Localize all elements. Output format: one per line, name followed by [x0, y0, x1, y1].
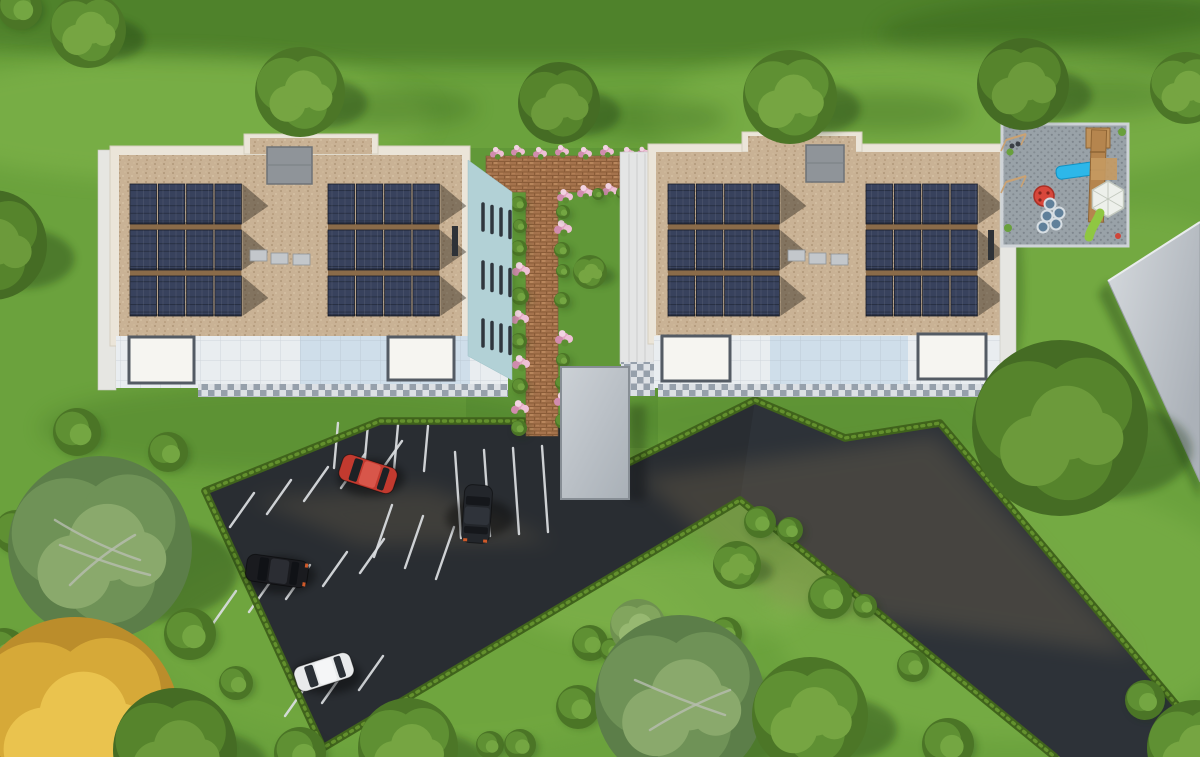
solar-panel [923, 184, 950, 224]
solar-panel [158, 230, 185, 270]
solar-panel [215, 230, 242, 270]
solar-array-right-a [668, 184, 806, 316]
play-plant [1004, 224, 1012, 232]
tree-foliage [740, 561, 754, 575]
flower [515, 310, 522, 317]
solar-panel [130, 276, 157, 316]
terrace-skylight [388, 337, 454, 380]
play-platform [1091, 158, 1117, 180]
bush-light [571, 699, 591, 719]
solar-panel [385, 276, 412, 316]
bush-light [908, 660, 922, 674]
solar-panel [215, 276, 242, 316]
tree-foliage [1029, 76, 1057, 104]
flower [536, 147, 541, 152]
flower [538, 154, 544, 160]
flower [603, 145, 608, 150]
tree-foliage [93, 23, 116, 46]
terrace-skylight [129, 337, 194, 383]
panel-row-frame [328, 224, 439, 230]
bush-light [518, 383, 525, 390]
bush-light [517, 338, 524, 345]
panel-row-shade [668, 222, 779, 224]
solar-panel [725, 276, 752, 316]
aerial-site-render [0, 0, 1200, 757]
panel-row-shade [668, 314, 779, 316]
solar-panel [894, 276, 921, 316]
bush-light [561, 358, 567, 364]
flower [581, 147, 586, 152]
tree-foliage [0, 235, 32, 268]
flower [517, 319, 524, 326]
panel-row-shade [328, 268, 439, 270]
bush-light [786, 525, 798, 537]
flower [605, 183, 611, 189]
solar-panel [951, 276, 978, 316]
roof-vent [452, 226, 458, 256]
solar-panel [668, 276, 695, 316]
tree-foliage [690, 685, 741, 736]
car-roof [268, 558, 290, 584]
flower [495, 154, 501, 160]
bush-light [596, 192, 601, 197]
solar-panel [725, 184, 752, 224]
flower [516, 152, 522, 158]
panel-row-frame [130, 224, 241, 230]
flower [583, 154, 589, 160]
tree-foliage [305, 84, 332, 111]
flower [563, 197, 569, 203]
car-taillight [463, 538, 467, 541]
car-body-group [461, 484, 493, 544]
solar-panel [894, 184, 921, 224]
solar-panel [187, 276, 214, 316]
play-seat [1038, 222, 1049, 233]
flower [514, 145, 519, 150]
solar-panel [328, 276, 355, 316]
solar-panel [356, 184, 383, 224]
car-taillight [483, 539, 487, 542]
roof-vent [988, 230, 994, 260]
tree-foliage [592, 269, 602, 279]
circle [1038, 191, 1041, 194]
flower [517, 409, 524, 416]
flower [558, 220, 565, 227]
solar-array-left-b [328, 184, 466, 316]
solar-panel [328, 184, 355, 224]
car-taillight [305, 563, 309, 567]
solar-panel [413, 184, 440, 224]
flower [560, 229, 567, 236]
terrace-skylight [662, 336, 730, 381]
scene-layers [0, 0, 1200, 757]
bush-light [561, 269, 567, 275]
tree-foliage [796, 89, 824, 117]
solar-panel [130, 184, 157, 224]
solar-panel [356, 276, 383, 316]
tree-foliage [564, 96, 589, 121]
solar-panel [385, 230, 412, 270]
panel-row-shade [866, 222, 977, 224]
panel-row-shade [130, 222, 241, 224]
panel-row-frame [866, 224, 977, 230]
solar-panel [668, 184, 695, 224]
play-plant [1007, 149, 1014, 156]
solar-panel [894, 230, 921, 270]
bush-light [162, 445, 180, 463]
solar-array-left-a [130, 184, 268, 316]
bush-light [13, 0, 33, 20]
bush-light [182, 625, 205, 648]
rooftop-hvac [831, 254, 848, 265]
solar-panel [923, 230, 950, 270]
terrace-checker-edge [198, 384, 508, 397]
solar-panel [866, 230, 893, 270]
flower [560, 152, 566, 158]
swing-seat [1016, 142, 1021, 147]
bush-light [515, 739, 529, 753]
panel-row-frame [328, 270, 439, 276]
bldg-left-teal-facade [468, 160, 512, 380]
rooftop-hvac [293, 254, 310, 265]
solar-panel [215, 184, 242, 224]
panel-row-shade [328, 222, 439, 224]
circle [1046, 191, 1049, 194]
terrace-skylight [918, 334, 986, 379]
circle [1038, 198, 1041, 201]
flower [605, 152, 611, 158]
flower [518, 364, 525, 371]
bush-light [1139, 693, 1157, 711]
bush-light [70, 424, 92, 446]
solar-panel [753, 276, 780, 316]
solar-panel [866, 184, 893, 224]
flower [516, 262, 523, 269]
canopy-shadow [628, 405, 646, 500]
bush-light [560, 247, 567, 254]
flower [558, 145, 563, 150]
rooftop-hvac [250, 250, 267, 261]
solar-panel [923, 276, 950, 316]
bush-light [517, 245, 524, 252]
bush-light [517, 201, 524, 208]
solar-panel [385, 184, 412, 224]
car-windshield [466, 496, 491, 506]
flower [640, 147, 645, 152]
solar-panel [696, 184, 723, 224]
solar-panel [130, 230, 157, 270]
panel-row-shade [130, 314, 241, 316]
rooftop-hvac [271, 253, 288, 264]
panel-row-frame [668, 270, 779, 276]
tree-foliage [1071, 412, 1124, 465]
solar-panel [951, 184, 978, 224]
flower [608, 191, 614, 197]
flower [493, 147, 498, 152]
solar-panel [413, 276, 440, 316]
car-taillight [302, 582, 306, 586]
solar-panel [158, 276, 185, 316]
solar-panel [951, 230, 978, 270]
flower [559, 330, 566, 337]
flower [515, 400, 522, 407]
panel-row-frame [866, 270, 977, 276]
solar-panel [753, 230, 780, 270]
solar-panel [668, 230, 695, 270]
panel-row-shade [866, 314, 977, 316]
flower [561, 339, 568, 346]
rooftop-hvac [809, 253, 826, 264]
panel-row-shade [130, 268, 241, 270]
solar-panel [725, 230, 752, 270]
bush-light [861, 602, 872, 613]
panel-row-shade [866, 268, 977, 270]
solar-array-right-b [866, 184, 1004, 316]
solar-panel [696, 230, 723, 270]
solar-panel [187, 230, 214, 270]
flower [580, 185, 586, 191]
panel-row-shade [668, 268, 779, 270]
flower [560, 189, 566, 195]
solar-panel [356, 230, 383, 270]
play-seat [1045, 199, 1056, 210]
solar-panel [413, 230, 440, 270]
solar-panel [696, 276, 723, 316]
bush-light [560, 297, 567, 304]
panel-row-shade [328, 314, 439, 316]
play-plant [1118, 128, 1126, 136]
solar-panel [328, 230, 355, 270]
play-seat [1054, 208, 1065, 219]
panel-row-frame [668, 224, 779, 230]
play-seat [1051, 219, 1062, 230]
car-roof [464, 506, 490, 525]
flower [624, 147, 629, 152]
entrance-canopy [561, 367, 629, 499]
tree-foliage [817, 705, 852, 740]
bush-light [231, 677, 246, 692]
garden-path-vertical [526, 190, 558, 436]
bush-light [486, 740, 499, 753]
flower [518, 271, 525, 278]
bush-light [518, 224, 524, 230]
solar-panel [753, 184, 780, 224]
solar-panel [866, 276, 893, 316]
bush-light [823, 589, 843, 609]
bush-light [517, 293, 525, 301]
play-seat [1042, 211, 1053, 222]
bush-light [755, 516, 769, 530]
rooftop-hvac [788, 250, 805, 261]
scene-canvas [0, 0, 1200, 757]
panel-row-frame [130, 270, 241, 276]
solar-panel [187, 184, 214, 224]
bush-light [585, 637, 601, 653]
flower [583, 193, 589, 199]
terrace-checker-edge [658, 384, 1004, 397]
swing-seat [1010, 144, 1015, 149]
play-mushroom [1115, 233, 1121, 239]
flower [516, 355, 523, 362]
bush-light [561, 210, 567, 216]
solar-panel [158, 184, 185, 224]
bush-light [517, 425, 524, 432]
